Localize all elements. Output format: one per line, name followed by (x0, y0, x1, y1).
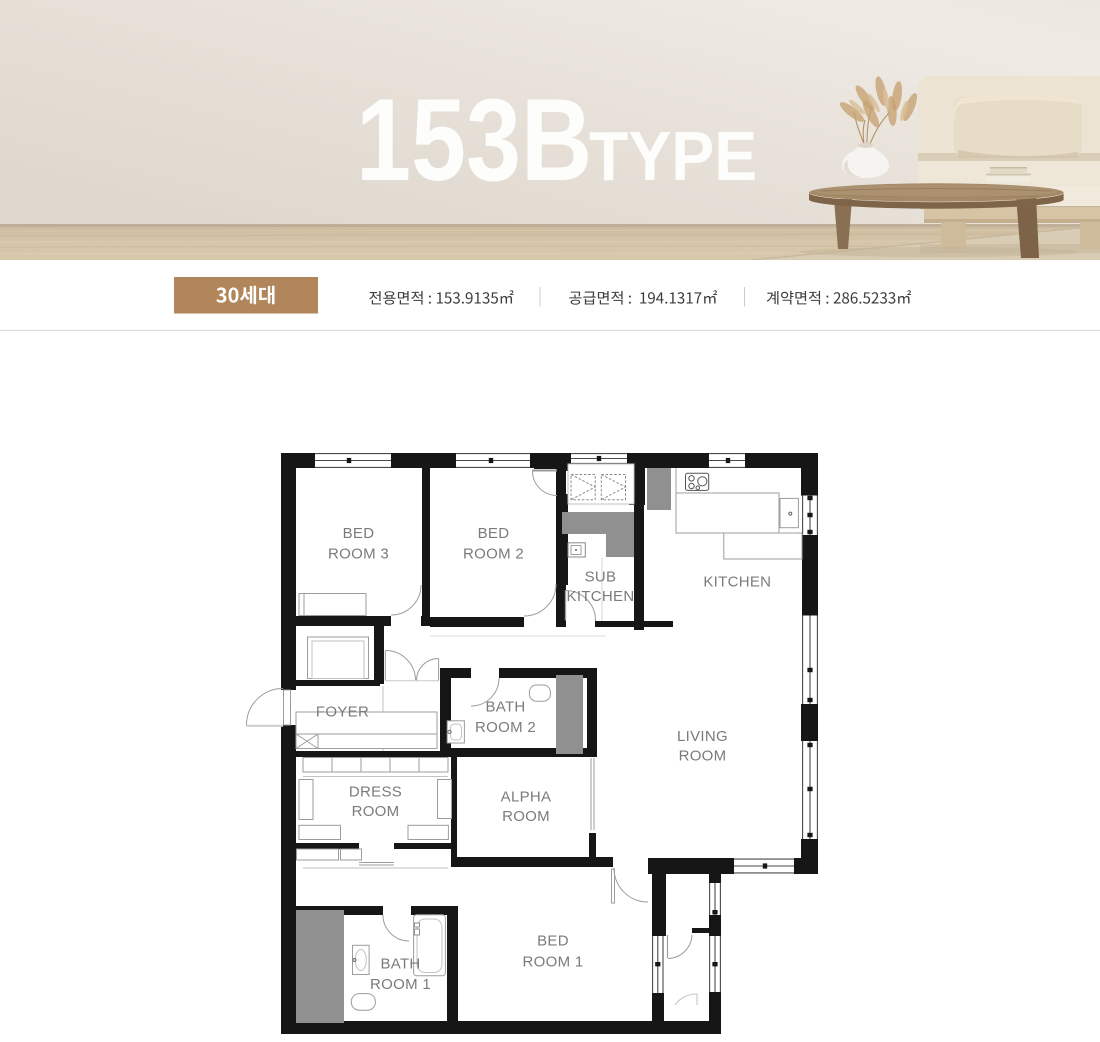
svg-text:DRESS: DRESS (349, 784, 402, 801)
svg-text:ROOM: ROOM (679, 748, 727, 765)
svg-text:ROOM 1: ROOM 1 (370, 976, 431, 993)
svg-text:ALPHA: ALPHA (501, 789, 552, 806)
svg-text:KITCHEN: KITCHEN (703, 574, 771, 591)
svg-text:BED: BED (343, 525, 375, 542)
svg-text:ROOM 3: ROOM 3 (328, 546, 389, 563)
svg-text:ROOM: ROOM (502, 808, 550, 825)
svg-text:KITCHEN: KITCHEN (567, 588, 635, 605)
svg-text:LIVING: LIVING (677, 728, 728, 745)
svg-text:SUB: SUB (585, 569, 617, 586)
svg-text:TYPE: TYPE (589, 118, 757, 196)
svg-text:BATH: BATH (485, 699, 525, 716)
svg-text:ROOM 2: ROOM 2 (463, 546, 524, 563)
svg-text:BED: BED (537, 933, 569, 950)
svg-text:ROOM 1: ROOM 1 (523, 954, 584, 971)
svg-text:BATH: BATH (380, 956, 420, 973)
svg-text:ROOM: ROOM (352, 803, 400, 820)
svg-text:ROOM 2: ROOM 2 (475, 719, 536, 736)
svg-text:153B: 153B (356, 74, 592, 205)
svg-text:FOYER: FOYER (316, 704, 369, 721)
svg-text:BED: BED (478, 525, 510, 542)
